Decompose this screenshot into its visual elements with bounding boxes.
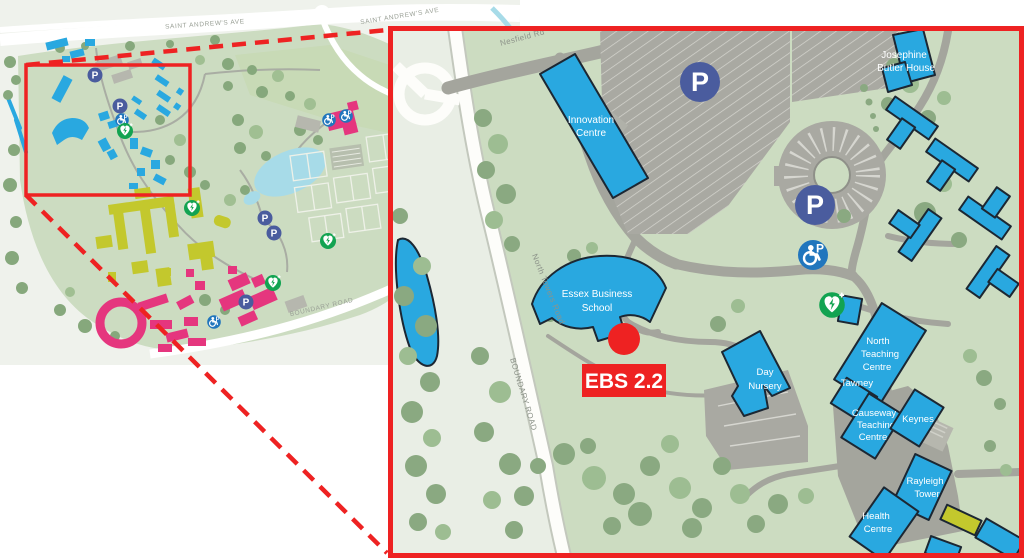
svg-text:Josephine: Josephine: [881, 50, 927, 61]
svg-text:Rayleigh: Rayleigh: [907, 476, 944, 487]
campus-map-figure: P P: [0, 0, 1024, 558]
detail-map: P: [388, 26, 1024, 558]
accessible-parking-icon: P: [798, 240, 828, 270]
svg-text:Centre: Centre: [859, 432, 888, 443]
svg-text:Tower: Tower: [914, 489, 939, 500]
svg-text:P: P: [816, 242, 824, 256]
svg-text:Centre: Centre: [863, 362, 892, 373]
svg-text:Essex Business: Essex Business: [562, 289, 633, 300]
svg-text:Teaching: Teaching: [861, 349, 899, 360]
svg-text:Health: Health: [862, 511, 889, 522]
svg-text:Teaching: Teaching: [857, 420, 895, 431]
svg-text:Centre: Centre: [864, 524, 893, 535]
svg-text:Nursery: Nursery: [748, 381, 782, 392]
svg-text:Keynes: Keynes: [902, 414, 934, 425]
svg-text:Causeway: Causeway: [852, 408, 897, 419]
defibrillator-icon: [819, 292, 845, 318]
svg-text:Innovation: Innovation: [568, 115, 614, 126]
location-marker-dot: [608, 323, 640, 355]
svg-text:Centre: Centre: [576, 128, 606, 139]
svg-text:North: North: [866, 336, 889, 347]
svg-text:Butler House: Butler House: [877, 63, 935, 74]
svg-text:School: School: [582, 303, 613, 314]
svg-text:Tawney: Tawney: [841, 378, 873, 389]
location-marker-label: EBS 2.2: [585, 370, 663, 393]
svg-text:Day: Day: [757, 367, 774, 378]
